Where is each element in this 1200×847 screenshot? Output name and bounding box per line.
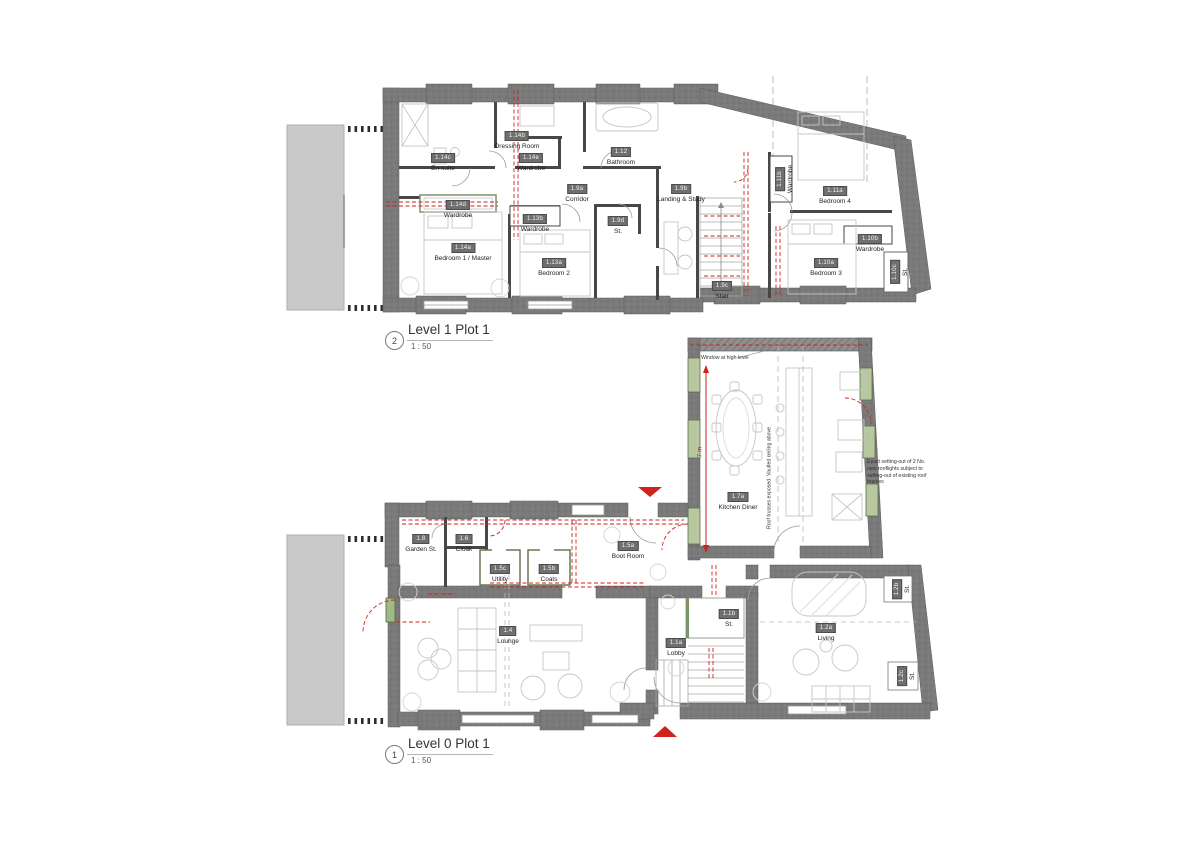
room-label-st-2c: 1.2cSt. <box>890 666 916 686</box>
room-label-st-1b: 1.1bSt. <box>719 602 739 628</box>
level0-view-title: Level 0 Plot 1 <box>408 736 490 751</box>
room-label-wardrobe-13b: 1.13bWardrobe <box>521 207 549 233</box>
room-label-utility: 1.5cUtility <box>490 557 510 583</box>
room-label-bedroom4: 1.11aBedroom 4 <box>819 179 851 205</box>
room-label-boot-room: 1.5aBoot Room <box>612 534 645 560</box>
room-label-bedroom2: 1.13aBedroom 2 <box>538 251 570 277</box>
room-label-coats: 1.5bCoats <box>539 557 559 583</box>
room-label-st-2b: 1.2bSt. <box>885 579 911 599</box>
room-label-wardrobe-14d: 1.14dWardrobe <box>444 193 472 219</box>
dimension-7m: 7 m <box>697 447 704 458</box>
room-label-bedroom1: 1.14aBedroom 1 / Master <box>434 236 491 262</box>
room-label-st-9d: 1.9dSt. <box>608 209 628 235</box>
level1-view-marker: 2 <box>385 331 404 350</box>
level1-title-underline <box>407 340 493 341</box>
room-label-kitchen-diner: 1.7aKitchen Diner <box>718 485 757 511</box>
room-label-en-suite: 1.14cEn-suite <box>431 146 455 172</box>
room-label-stair: 1.9cStair <box>712 274 732 300</box>
level0-kitchen-walls <box>688 338 883 560</box>
room-label-wardrobe-14e: 1.14eWardrobe <box>517 146 545 172</box>
note-window-high-level: Window at high level <box>701 355 763 362</box>
level0-view-scale: 1 : 50 <box>411 756 431 765</box>
room-label-corridor: 1.9aCorridor <box>565 177 588 203</box>
room-label-bathroom: 1.12Bathroom <box>607 140 635 166</box>
room-label-bedroom3: 1.10aBedroom 3 <box>810 251 842 277</box>
room-label-lobby: 1.1aLobby <box>666 631 686 657</box>
room-label-landing-study: 1.9bLanding & Study <box>657 177 705 203</box>
room-label-lounge: 1.4Lounge <box>497 619 519 645</box>
level1-view-title: Level 1 Plot 1 <box>408 322 490 337</box>
hatch-dash-rows <box>348 126 383 724</box>
level0-title-underline <box>407 754 493 755</box>
room-label-cloak: 1.6Cloak <box>456 527 473 553</box>
room-label-living: 1.2aLiving <box>816 616 836 642</box>
level0-kitchen-dimension <box>703 365 709 553</box>
room-label-wardrobe-10b: 1.10bWardrobe <box>856 227 884 253</box>
note-roof-trusses: Roof trusses exposed. Vaulted ceiling ab… <box>767 427 774 529</box>
room-label-st-10c: 1.10cSt. <box>883 260 909 284</box>
adjacent-building-masses <box>287 125 383 725</box>
floor-plan-sheet: 1.14cEn-suite 1.14bDressing Room 1.14eWa… <box>0 0 1200 847</box>
room-label-wardrobe-11b: 1.11bWardrobe <box>768 165 794 193</box>
level0-view-marker: 1 <box>385 745 404 764</box>
note-rooflights: Exact setting-out of 2 No. new rooflight… <box>867 459 931 486</box>
room-label-garden-st: 1.8Garden St. <box>405 527 436 553</box>
level1-view-scale: 1 : 50 <box>411 342 431 351</box>
floor-plan-drawing <box>0 0 1200 847</box>
